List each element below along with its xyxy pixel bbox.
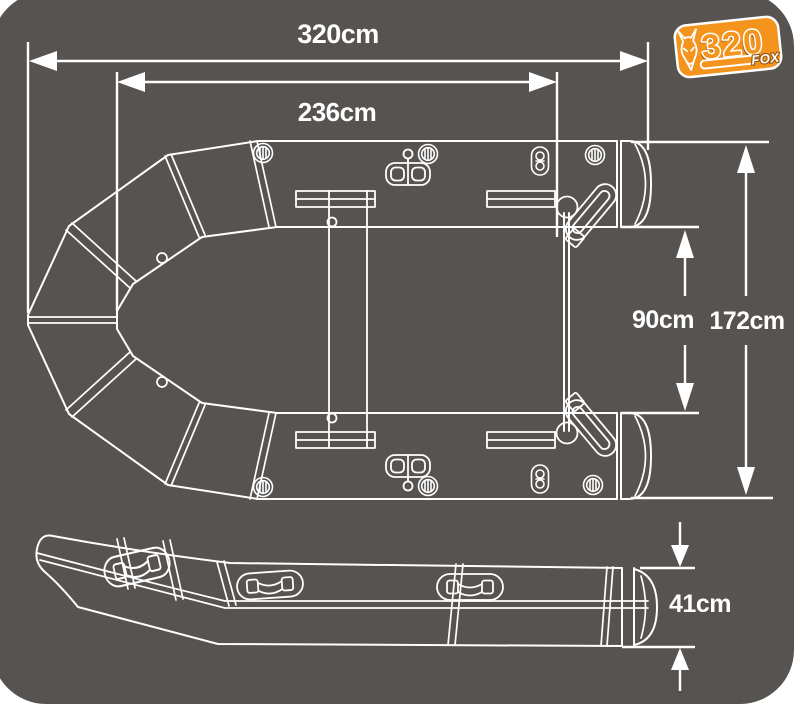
boat-dimension-diagram: 320cm 236cm 90cm 172cm 41cm 320 320 FOX <box>0 0 800 706</box>
valve-icon <box>254 144 273 163</box>
fox-320-logo: 320 320 FOX <box>674 16 783 79</box>
inner-length-label: 236cm <box>298 97 376 127</box>
valve-icon <box>254 478 273 497</box>
inner-width-label: 90cm <box>632 306 694 334</box>
logo-brand-text: FOX <box>751 50 781 68</box>
valve-icon <box>419 145 438 164</box>
valve-icon <box>586 146 605 165</box>
valve-icon <box>584 476 603 495</box>
valve-icon <box>419 477 438 496</box>
tube-height-label: 41cm <box>669 590 731 618</box>
overall-width-label: 172cm <box>709 307 784 335</box>
overall-length-label: 320cm <box>297 19 379 49</box>
diagram-canvas: 320cm 236cm 90cm 172cm 41cm 320 320 FOX <box>0 0 800 706</box>
